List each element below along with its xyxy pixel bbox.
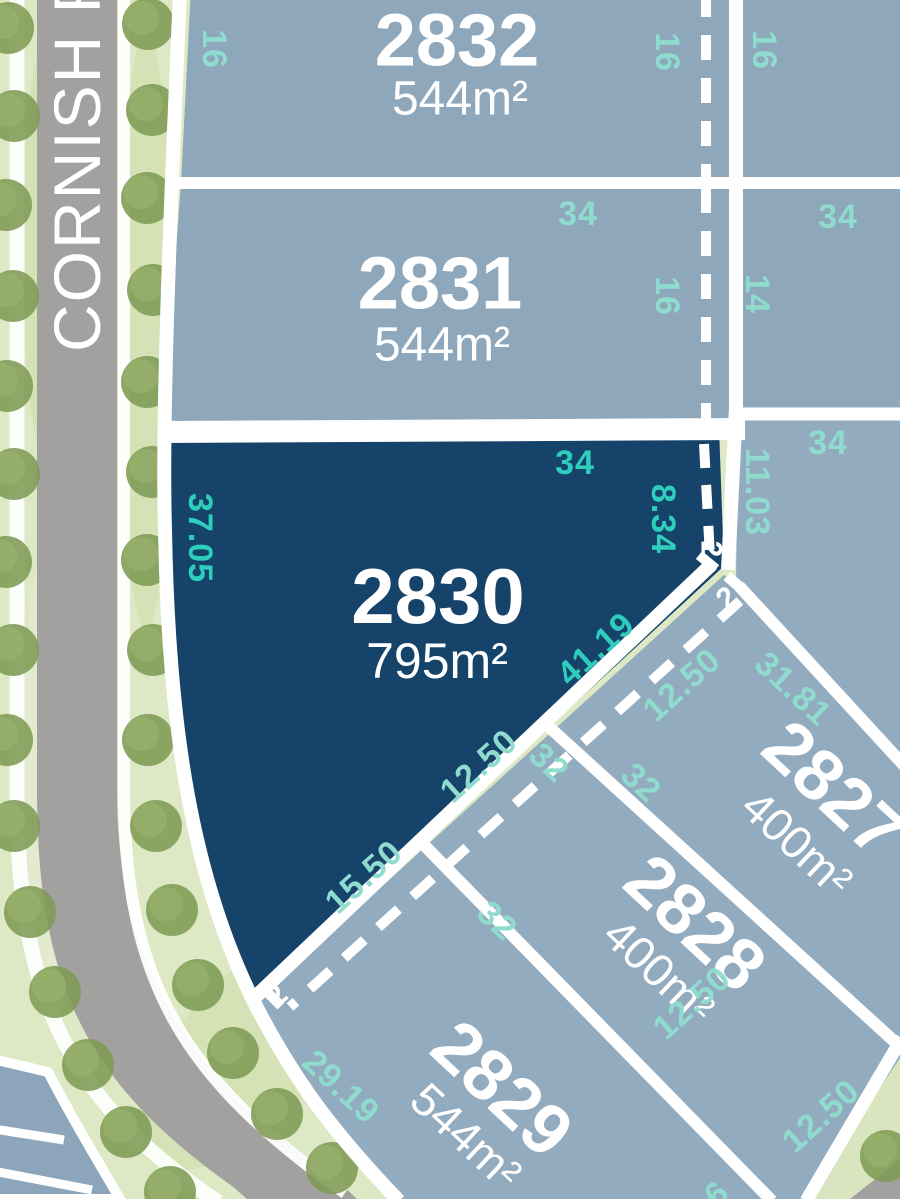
tree-icon xyxy=(207,1027,259,1079)
lot-number-2832: 2832 xyxy=(375,0,540,82)
tree-icon xyxy=(29,966,81,1018)
dim-label: 34 xyxy=(818,198,858,236)
tree-icon xyxy=(4,886,56,938)
tree-icon xyxy=(100,1106,152,1158)
dim-label: 16 xyxy=(195,29,233,69)
tree-icon xyxy=(122,0,174,50)
dim-label: 14 xyxy=(738,274,776,314)
masterplan-map: CORNISH R 2832 544m² 2831 544m² 2830 795… xyxy=(0,0,900,1199)
tree-icon xyxy=(146,884,198,936)
lot-area-2832: 544m² xyxy=(392,73,528,126)
lot-number-2831: 2831 xyxy=(358,242,523,325)
tree-icon xyxy=(172,959,224,1011)
street-name: CORNISH R xyxy=(40,0,114,352)
dim-label: 8.34 xyxy=(644,484,682,554)
tree-icon xyxy=(130,800,182,852)
dim-label: 16 xyxy=(648,276,686,316)
lot-area-2830: 795m² xyxy=(366,633,508,689)
dim-label: 37.05 xyxy=(181,493,219,583)
chamfer-label: 2 xyxy=(695,541,728,558)
dim-label: 16 xyxy=(745,30,783,70)
dim-label: 34 xyxy=(555,444,595,482)
boundary-line xyxy=(728,0,736,570)
dim-label: 34 xyxy=(558,195,598,233)
tree-icon xyxy=(62,1039,114,1091)
lot-parcel-right-top[interactable] xyxy=(736,0,900,183)
dim-label: 16 xyxy=(648,32,686,72)
tree-icon xyxy=(251,1088,303,1140)
lot-number-2830: 2830 xyxy=(351,552,525,640)
lot-area-2831: 544m² xyxy=(374,319,510,372)
tree-icon xyxy=(122,714,174,766)
dim-label: 34 xyxy=(808,424,848,462)
boundary-line xyxy=(158,429,745,432)
dim-label: 11.03 xyxy=(738,448,776,536)
